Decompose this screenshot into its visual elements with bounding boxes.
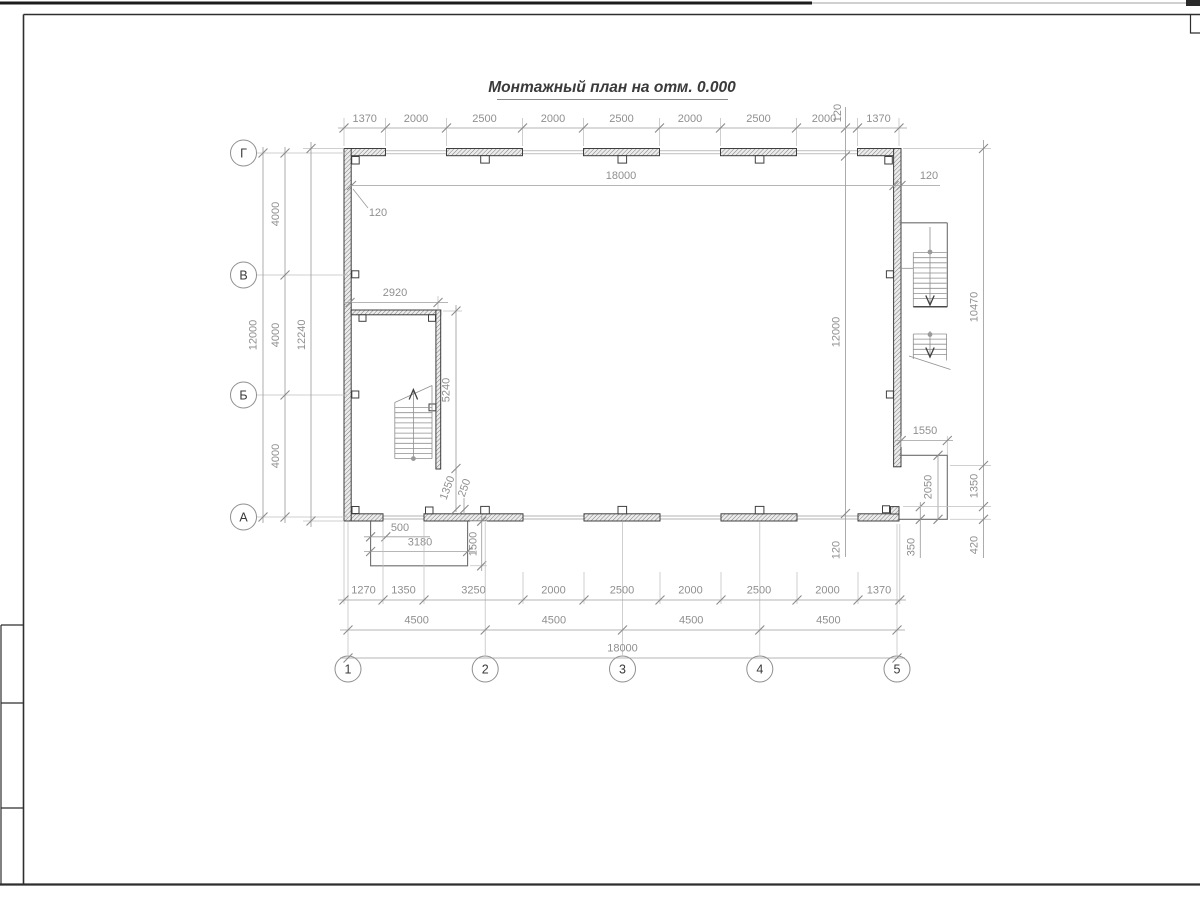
dim-label: 500	[391, 522, 409, 534]
frame-corner-box	[1191, 15, 1200, 34]
dim-label: 350	[906, 538, 918, 556]
dim-label: 2000	[678, 585, 702, 597]
dim-label: 250	[456, 477, 474, 498]
dim-label: 4500	[404, 615, 428, 627]
axis-label: Б	[239, 389, 247, 403]
dim-left-chains: 12000 4000 4000 4000 12240	[248, 142, 349, 527]
dim-label: 1370	[352, 113, 376, 125]
dim-label: 2500	[746, 113, 770, 125]
dim-label: 2000	[541, 113, 565, 125]
sheet-corner-mark	[1186, 0, 1200, 6]
dim-label: 10470	[969, 292, 981, 323]
dim-label: 2920	[383, 287, 407, 299]
dim-label: 1350	[969, 474, 981, 498]
dim-label: 1270	[351, 585, 375, 597]
dim-label: 3250	[461, 585, 485, 597]
dim-label: 4000	[270, 202, 282, 226]
left-wall	[344, 149, 351, 522]
dim-label: 2500	[609, 113, 633, 125]
dim-left-spans: 4000 4000 4000	[270, 147, 290, 523]
dim-label: 120	[832, 104, 844, 122]
right-wall	[894, 149, 901, 467]
drawing-sheet: Монтажный план на отм. 0.000	[0, 0, 1200, 900]
dim-label: 4500	[679, 615, 703, 627]
axis-markers-bottom: 1 2 3 4 5	[335, 656, 910, 682]
axis-label: В	[239, 269, 247, 283]
axis-label: 4	[756, 663, 763, 677]
dim-inner-width: 18000 120 120	[347, 170, 940, 219]
dim-label: 420	[969, 536, 981, 554]
dim-label: 5240	[441, 378, 453, 402]
dim-label: 1350	[438, 474, 458, 501]
dim-label: 1350	[391, 585, 415, 597]
dim-label: 120	[920, 170, 938, 182]
dim-label: 1370	[866, 113, 890, 125]
dim-porch-left: 500 3180 1500	[364, 516, 487, 571]
stairwell-walls	[351, 310, 441, 469]
axis-label: 1	[345, 663, 352, 677]
dim-label: 12240	[296, 320, 308, 351]
dim-left-overall: 12240	[296, 142, 316, 527]
bottom-wall	[344, 506, 899, 521]
dim-label: 12000	[831, 317, 843, 348]
stair-right	[900, 223, 951, 370]
dim-chain-top: 1370 2000 2500 2000 2500 2000 2500 2000 …	[338, 104, 907, 146]
dim-label: 120	[369, 207, 387, 219]
dim-label: 2500	[472, 113, 496, 125]
left-margin-stamps	[1, 625, 24, 885]
dim-label: 2050	[923, 475, 935, 499]
dim-inner-height: 12000 120	[831, 107, 851, 559]
axis-label: Г	[240, 147, 247, 161]
dim-chain-bottom-1: 1270 1350 3250 2000 2500 2000 2500 2000 …	[338, 585, 906, 605]
dim-label: 1550	[913, 425, 937, 437]
dim-label: 120	[831, 541, 843, 559]
dim-label: 4000	[270, 444, 282, 468]
dim-label: 4500	[816, 615, 840, 627]
dim-left-total: 12000	[248, 147, 268, 523]
dim-label: 3180	[408, 537, 432, 549]
dim-label: 4000	[270, 323, 282, 347]
axis-label: 5	[894, 663, 901, 677]
page-title: Монтажный план на отм. 0.000	[488, 79, 736, 96]
dim-bottom-total: 18000	[340, 643, 905, 663]
plan-walls	[344, 149, 901, 522]
dim-label: 18000	[606, 170, 637, 182]
axis-label: 2	[482, 663, 489, 677]
dim-label: 12000	[248, 320, 260, 351]
dim-label: 2500	[747, 585, 771, 597]
sheet-frame	[0, 0, 1200, 885]
dim-label: 1370	[867, 585, 891, 597]
dim-label: 2000	[541, 585, 565, 597]
dim-label: 2000	[404, 113, 428, 125]
dim-label: 1500	[468, 532, 480, 556]
top-wall	[344, 149, 901, 165]
axis-label: А	[239, 511, 248, 525]
dim-label: 2000	[815, 585, 839, 597]
dim-label: 18000	[607, 643, 638, 655]
dim-label: 2000	[678, 113, 702, 125]
dim-label: 4500	[542, 615, 566, 627]
drawing-title: Монтажный план на отм. 0.000	[488, 79, 736, 100]
axis-label: 3	[619, 663, 626, 677]
stair-left	[395, 386, 432, 462]
dim-label: 2500	[610, 585, 634, 597]
floor-plan-drawing: Монтажный план на отм. 0.000	[0, 0, 1200, 900]
